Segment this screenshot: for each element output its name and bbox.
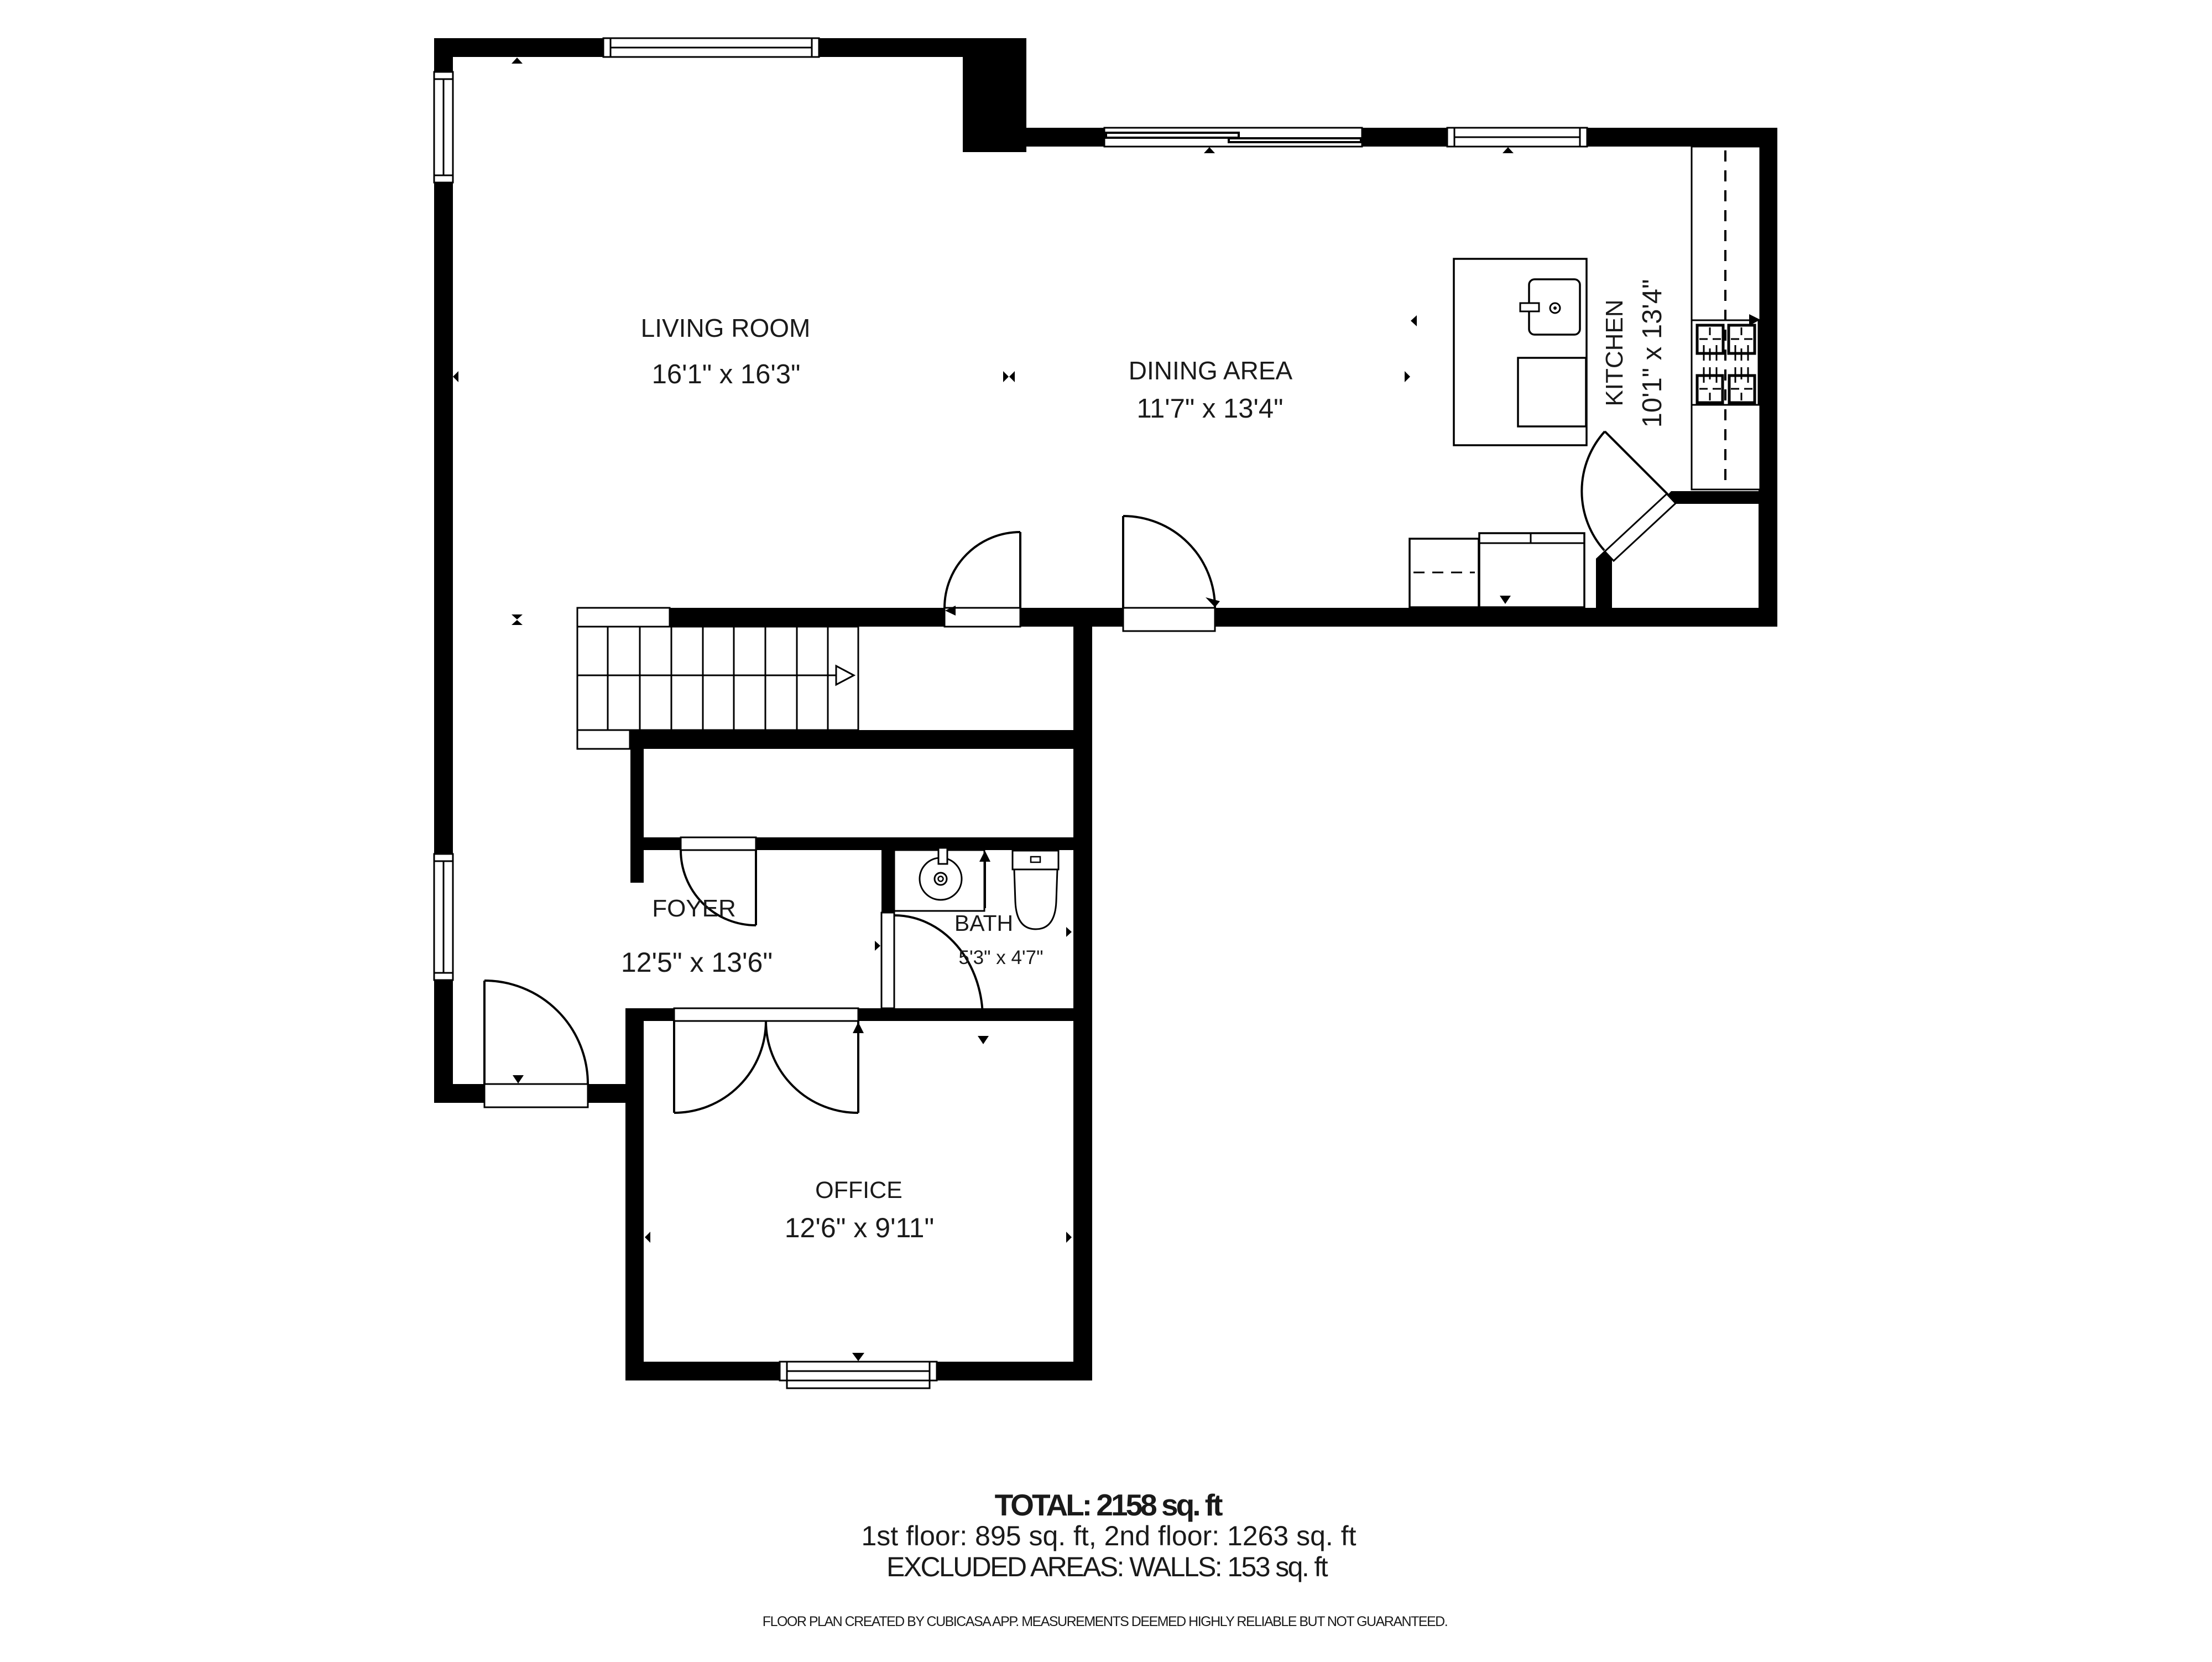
svg-text:11'7" x 13'4": 11'7" x 13'4" [1136, 394, 1283, 424]
svg-text:1st floor: 895 sq. ft, 2nd flo: 1st floor: 895 sq. ft, 2nd floor: 1263 s… [862, 1520, 1357, 1551]
svg-text:FOYER: FOYER [652, 895, 736, 922]
svg-text:LIVING ROOM: LIVING ROOM [641, 314, 811, 342]
svg-text:KITCHEN: KITCHEN [1601, 299, 1628, 406]
svg-text:TOTAL: 2158 sq. ft: TOTAL: 2158 sq. ft [995, 1488, 1223, 1522]
svg-text:EXCLUDED AREAS: WALLS: 153 sq.: EXCLUDED AREAS: WALLS: 153 sq. ft [886, 1551, 1328, 1582]
svg-text:10'1" x 13'4": 10'1" x 13'4" [1637, 279, 1667, 428]
svg-text:OFFICE: OFFICE [815, 1177, 902, 1203]
svg-text:16'1" x 16'3": 16'1" x 16'3" [652, 360, 801, 389]
svg-text:BATH: BATH [954, 910, 1013, 936]
svg-text:5'3" x 4'7": 5'3" x 4'7" [958, 947, 1043, 968]
svg-text:DINING AREA: DINING AREA [1129, 356, 1293, 385]
svg-text:FLOOR PLAN CREATED BY CUBICASA: FLOOR PLAN CREATED BY CUBICASA APP. MEAS… [763, 1614, 1447, 1629]
svg-text:12'5" x 13'6": 12'5" x 13'6" [621, 947, 773, 978]
svg-text:12'6" x 9'11": 12'6" x 9'11" [785, 1212, 935, 1243]
